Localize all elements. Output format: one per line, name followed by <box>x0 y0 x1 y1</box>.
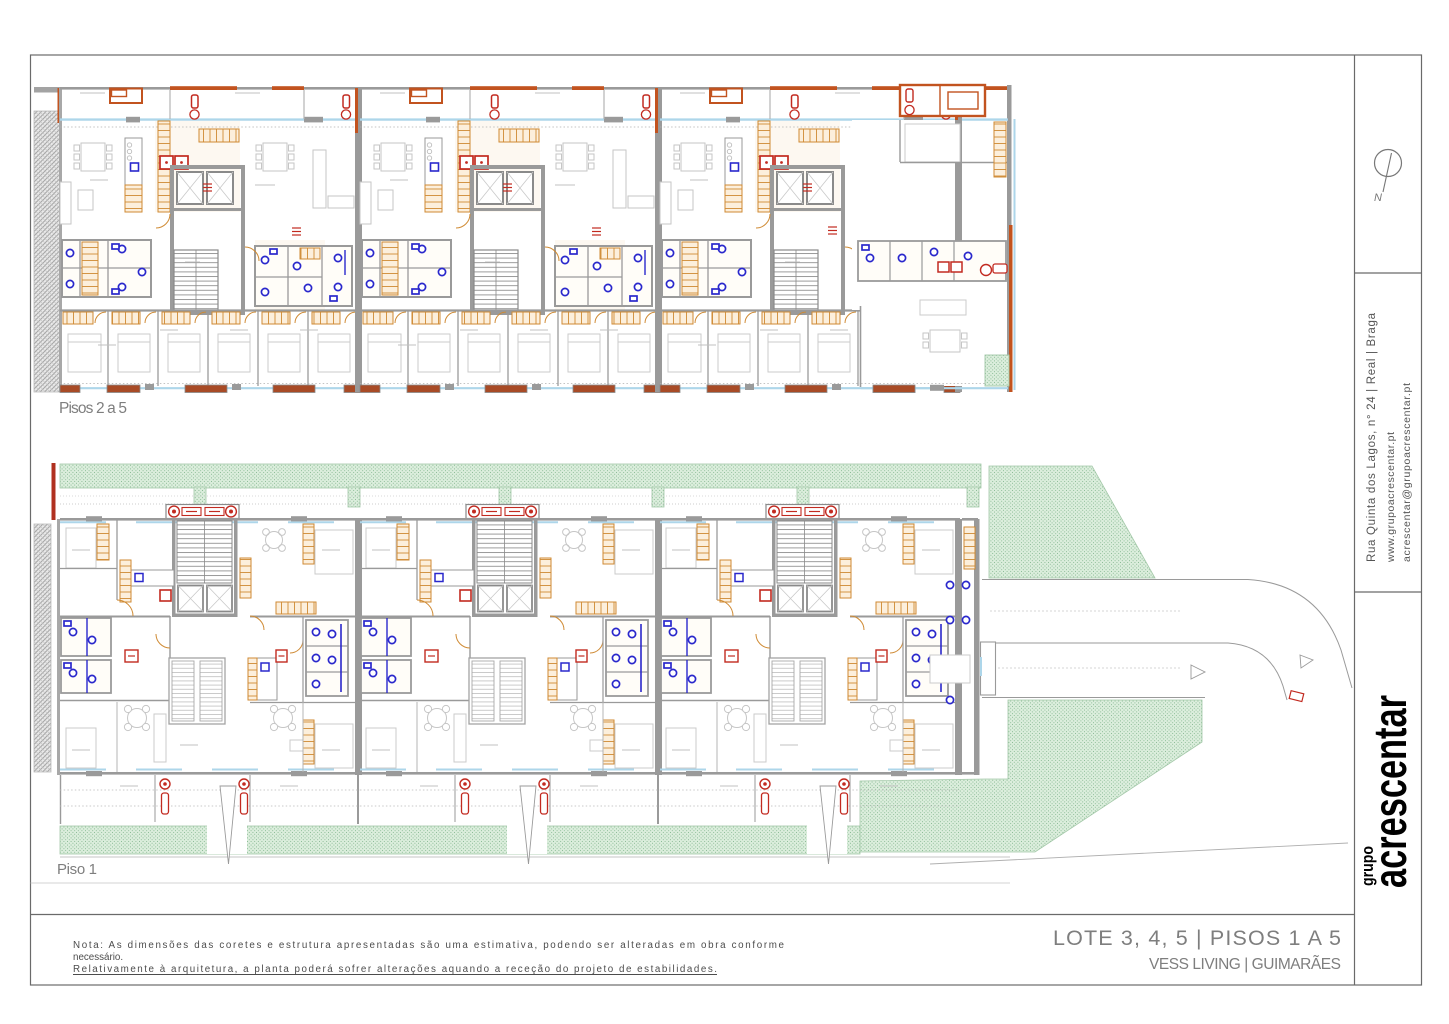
svg-text:necessário.: necessário. <box>73 952 123 963</box>
svg-text:Relativamente à arquitetura,: Relativamente à arquitetura, a planta po… <box>73 964 717 975</box>
svg-text:N: N <box>1374 192 1382 204</box>
svg-text:LOTE 3, 4, 5 | PISOS 1 A 5: LOTE 3, 4, 5 | PISOS 1 A 5 <box>1053 926 1341 950</box>
svg-text:Piso 1: Piso 1 <box>57 861 97 878</box>
svg-text:www.grupoacrescentar.pt: www.grupoacrescentar.pt <box>1385 432 1397 563</box>
svg-text:Pisos 2 a 5: Pisos 2 a 5 <box>59 400 127 417</box>
svg-text:Nota: As dimensões das cor: Nota: As dimensões das coretes e estrutu… <box>73 940 785 951</box>
svg-text:VESS LIVING | GUIMARÃES: VESS LIVING | GUIMARÃES <box>1149 956 1341 973</box>
svg-text:acrescentar@grupoacrescentar.p: acrescentar@grupoacrescentar.pt <box>1401 383 1413 562</box>
svg-text:Rua Quinta dos Lagos, n° 24 |: Rua Quinta dos Lagos, n° 24 | Real | Bra… <box>1366 312 1378 562</box>
svg-text:grupo: grupo <box>1358 846 1377 886</box>
